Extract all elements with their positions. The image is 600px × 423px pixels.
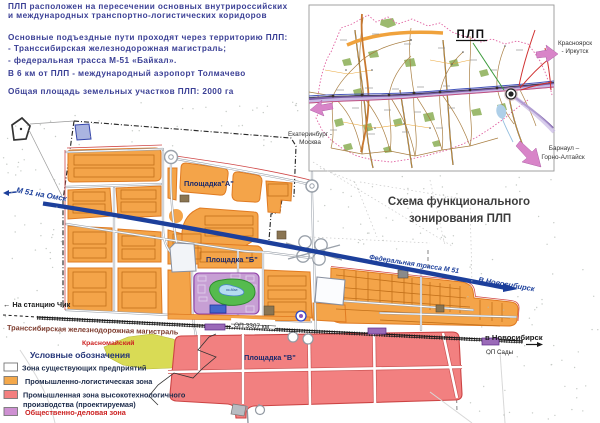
svg-text:ОП Сады: ОП Сады (486, 349, 514, 356)
svg-text:Транссибирская железнодорожная: Транссибирская железнодорожная магистрал… (7, 323, 179, 336)
svg-text:Зона существующих предприятий: Зона существующих предприятий (22, 364, 146, 373)
svg-text:Промышленная зона высокотехнол: Промышленная зона высокотехнологичного (23, 391, 186, 400)
svg-text:оз.Мал.: оз.Мал. (226, 288, 238, 292)
svg-text:- Иркутск: - Иркутск (562, 48, 589, 55)
svg-text:ПЛП: ПЛП (456, 29, 485, 41)
svg-text:Горно-Алтайск: Горно-Алтайск (541, 153, 585, 161)
svg-text:Екатеринбург -: Екатеринбург - (288, 130, 332, 138)
svg-text:← На станцию Чик: ← На станцию Чик (3, 300, 71, 309)
svg-text:Схема функционального: Схема функционального (388, 196, 530, 208)
svg-text:Общественно-деловая зона: Общественно-деловая зона (25, 408, 127, 417)
svg-text:в Новосибирск: в Новосибирск (485, 333, 543, 342)
svg-text:Площадка"А": Площадка"А" (184, 179, 234, 188)
svg-text:Красномайский: Красномайский (82, 339, 134, 347)
svg-text:зонирования ПЛП: зонирования ПЛП (409, 213, 511, 225)
svg-text:Промышленно-логистическая зона: Промышленно-логистическая зона (25, 377, 153, 386)
svg-text:Москва: Москва (299, 139, 321, 146)
svg-text:Барнаул –: Барнаул – (549, 145, 580, 152)
svg-text:М 51 на Омск: М 51 на Омск (16, 186, 69, 204)
svg-text:Площадка "Б": Площадка "Б" (206, 255, 258, 264)
svg-text:Красноярск: Красноярск (558, 40, 592, 47)
svg-text:Площадка "В": Площадка "В" (244, 353, 296, 362)
svg-text:Условные обозначения: Условные обозначения (30, 350, 130, 360)
